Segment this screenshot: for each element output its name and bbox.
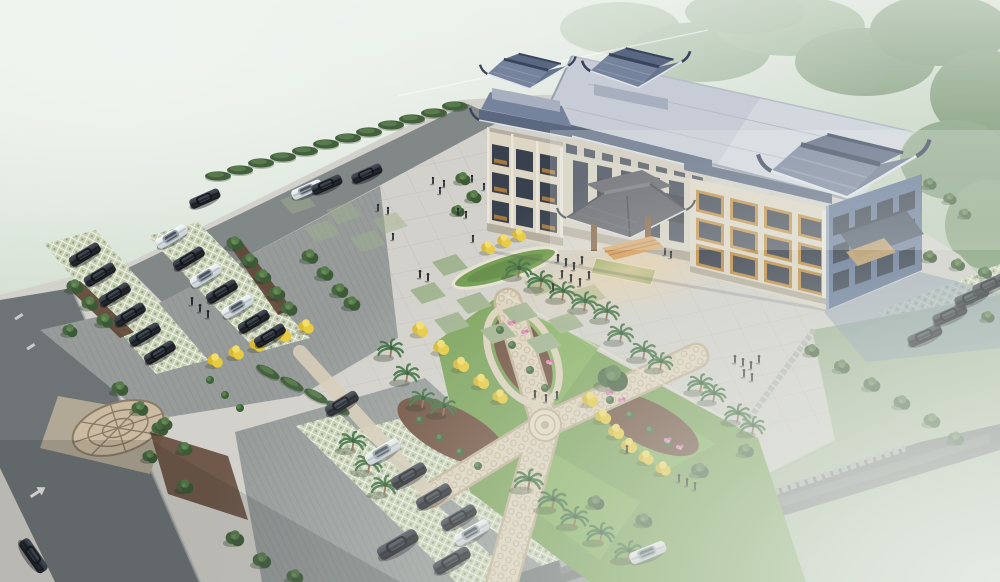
atmosphere [0,0,1000,582]
fog-band-right [550,130,1000,250]
architectural-rendering: Aerial rendering of a Chinese-style civi… [0,0,1000,582]
rendering-canvas: Aerial rendering of a Chinese-style civi… [0,0,1000,582]
